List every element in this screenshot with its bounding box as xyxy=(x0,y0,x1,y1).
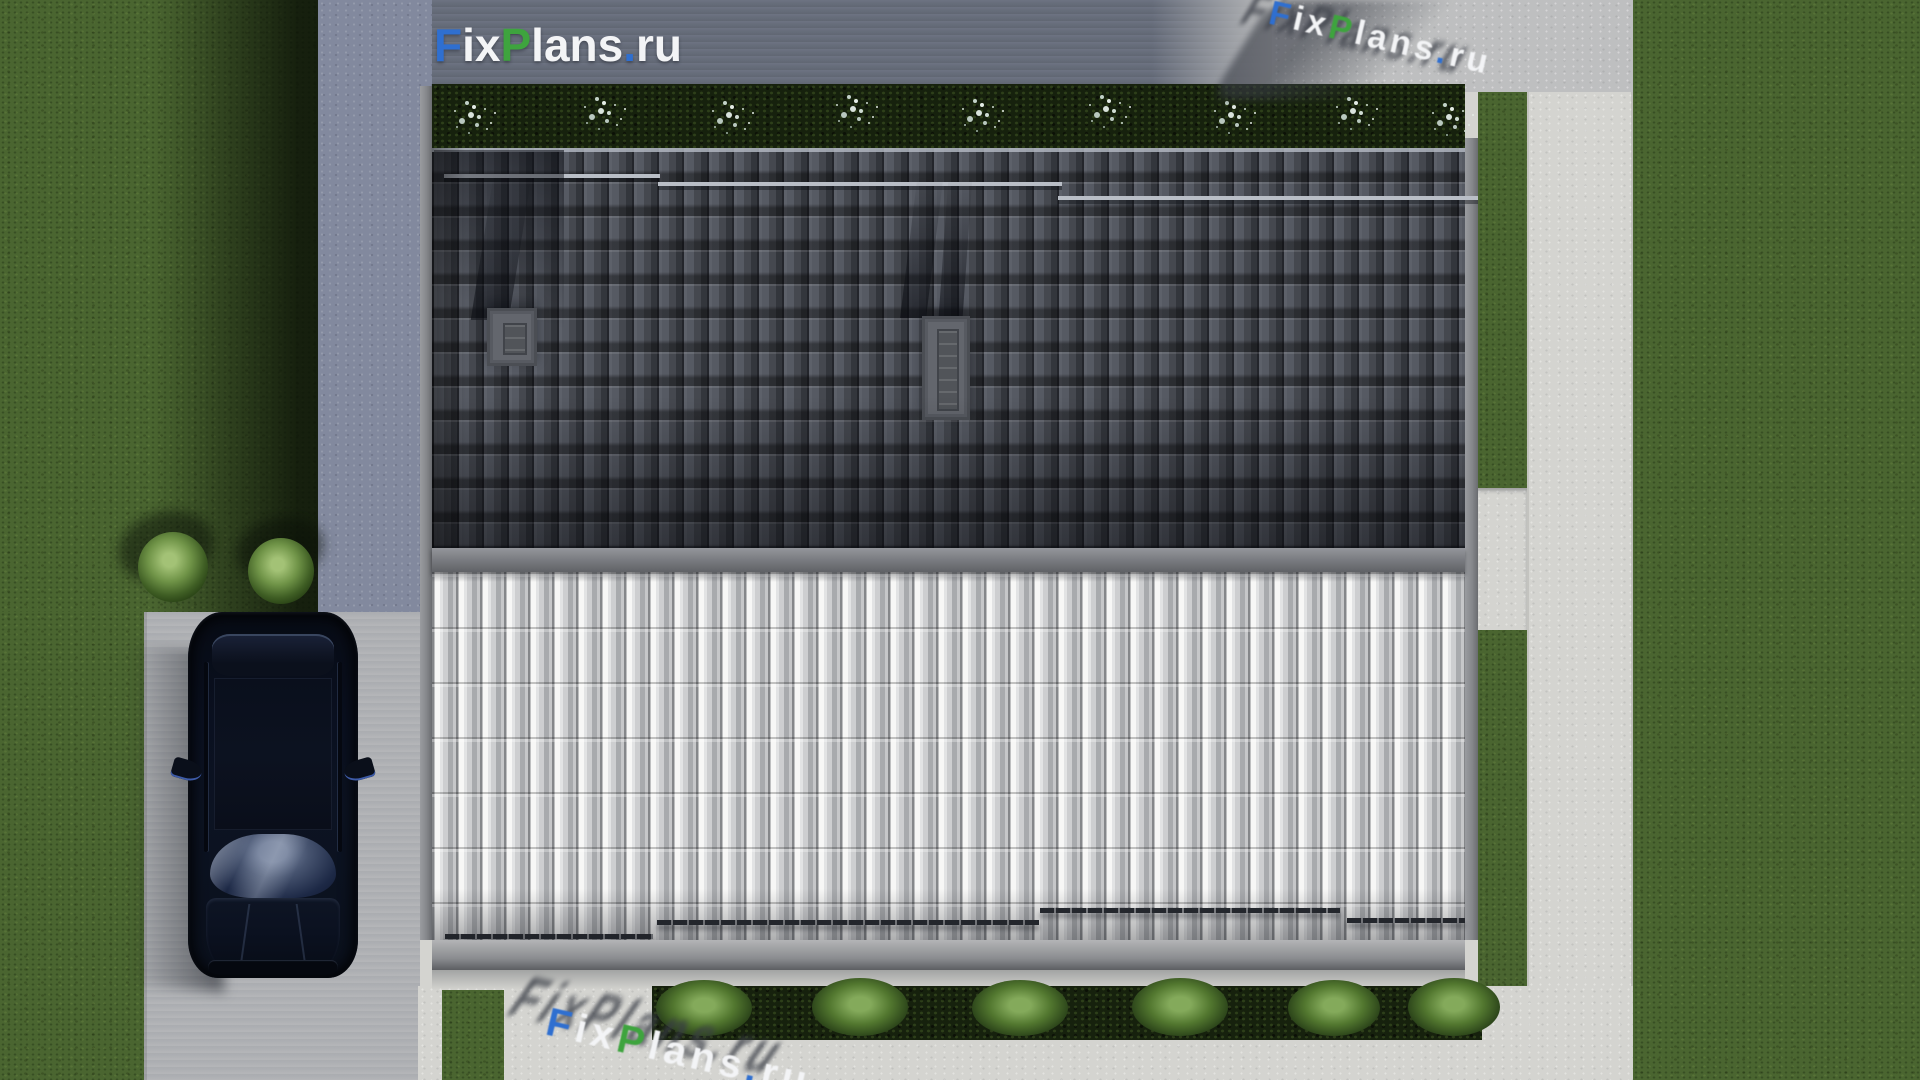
roof-dark-left-shading xyxy=(432,148,492,548)
car-front-bumper xyxy=(208,960,338,974)
flower-shrub xyxy=(468,112,474,118)
flower-shrub xyxy=(1446,114,1452,120)
grass-right-field xyxy=(1633,0,1920,1080)
roof-fascia-right xyxy=(1465,138,1478,940)
car-rear-window xyxy=(212,634,334,676)
logo-segment: ru xyxy=(1446,36,1495,82)
car-windshield xyxy=(210,834,336,898)
round-bush-right xyxy=(248,538,314,604)
front-bush xyxy=(1408,978,1500,1036)
roof-dark-slope xyxy=(432,148,1465,548)
grass-bottom-left xyxy=(0,612,144,1080)
roof-fascia-left xyxy=(420,86,432,940)
flower-shrub xyxy=(598,108,604,114)
front-bush xyxy=(1132,978,1228,1036)
aerial-render-scene: FixPlans.ru FixPlans.ru FixPlans.ru FixP… xyxy=(0,0,1920,1080)
side-yard-shaded-concrete xyxy=(318,0,432,614)
grass-patch-bottom xyxy=(442,990,504,1080)
fixplans-logo: FixPlans.ru xyxy=(434,18,682,72)
car-roof-rail-right xyxy=(338,662,342,852)
front-bush xyxy=(1288,980,1380,1036)
path-right-vertical xyxy=(1527,92,1633,1080)
roof-dark-eave-shading xyxy=(432,148,1465,548)
car-roof xyxy=(214,678,332,830)
front-bush xyxy=(972,980,1068,1036)
flower-shrub xyxy=(1228,112,1234,118)
logo-segment: . xyxy=(623,19,636,71)
round-bush-left xyxy=(138,532,208,602)
roof-light-eave-shading xyxy=(432,572,1465,940)
logo-segment: ix xyxy=(462,19,500,71)
logo-segment: ru xyxy=(636,19,682,71)
gutter-band xyxy=(432,940,1465,970)
front-bush xyxy=(812,978,908,1036)
flower-shrub xyxy=(976,110,982,116)
windshield-cloud-reflection xyxy=(210,834,336,898)
logo-segment: P xyxy=(500,19,531,71)
car-roof-rail-left xyxy=(204,662,208,852)
logo-segment: lans xyxy=(531,19,623,71)
flower-shrub xyxy=(726,112,732,118)
logo-segment: F xyxy=(434,19,462,71)
car xyxy=(188,612,358,978)
flower-shrub xyxy=(850,106,856,112)
roof-light-slope xyxy=(432,572,1465,940)
roof-ridge-band xyxy=(432,548,1465,572)
flower-shrub xyxy=(1350,108,1356,114)
flower-shrub xyxy=(1103,106,1109,112)
